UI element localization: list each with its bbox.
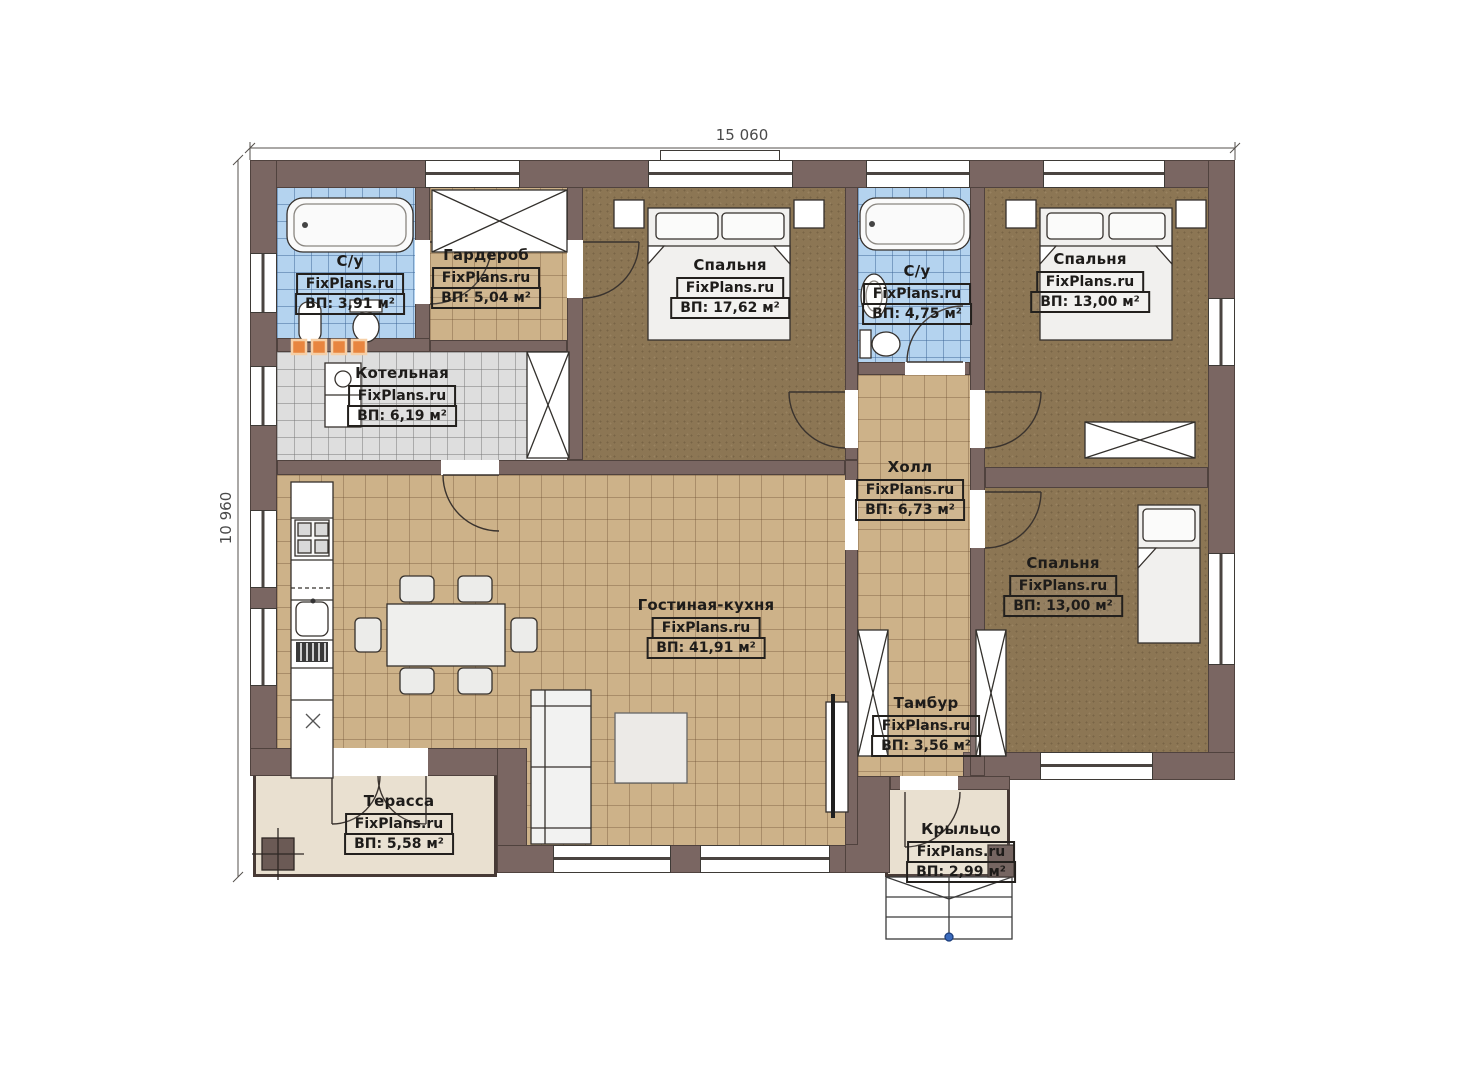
opening-hall-bedroom2 (970, 390, 985, 448)
room-name: Спальня (1026, 554, 1099, 572)
room-name: Холл (888, 458, 933, 476)
window-left-1 (250, 253, 277, 313)
watermark-badge: FixPlans.ru (296, 273, 404, 295)
room-area: ВП: 5,58 м² (344, 833, 454, 855)
watermark-badge: FixPlans.ru (348, 385, 456, 407)
entry-point-dot (945, 933, 953, 941)
opening-bedroom1 (567, 240, 583, 298)
room-name: Спальня (1053, 250, 1126, 268)
dimension-width: 15 060 (716, 126, 769, 144)
room-area: ВП: 4,75 м² (862, 303, 972, 325)
watermark-badge: FixPlans.ru (907, 841, 1015, 863)
bedroom-1-floor (583, 187, 845, 460)
room-area: ВП: 13,00 м² (1030, 291, 1150, 313)
room-label-terrace: Терасса FixPlans.ru ВП: 5,58 м² (344, 792, 454, 855)
watermark-badge: FixPlans.ru (432, 267, 540, 289)
opening-boiler (441, 460, 499, 475)
room-label-bathroom-1: С/у FixPlans.ru ВП: 3,91 м² (295, 252, 405, 315)
window-left-2 (250, 366, 277, 426)
watermark-badge: FixPlans.ru (345, 813, 453, 835)
room-label-wardrobe: Гардероб FixPlans.ru ВП: 5,04 м² (431, 246, 541, 309)
opening-hall-bedroom1 (845, 390, 858, 448)
bedroom-3-floor (985, 488, 1208, 752)
opening-wardrobe (415, 240, 430, 304)
room-area: ВП: 3,56 м² (871, 735, 981, 757)
watermark-badge: FixPlans.ru (856, 479, 964, 501)
partition-wardrobe-bedroom1 (567, 187, 583, 460)
window-bottom-1 (553, 845, 671, 873)
opening-entry-door (900, 776, 958, 790)
room-name: С/у (904, 262, 931, 280)
watermark-badge: FixPlans.ru (1036, 271, 1144, 293)
window-right-1 (1208, 298, 1235, 366)
dimension-height: 10 960 (217, 492, 235, 545)
wall-right (1208, 160, 1235, 780)
room-name: Гардероб (443, 246, 529, 264)
watermark-badge: FixPlans.ru (863, 283, 971, 305)
window-left-3 (250, 510, 277, 588)
wall-step (497, 748, 527, 848)
room-area: ВП: 13,00 м² (1003, 595, 1123, 617)
partition-bedroom2-bedroom3 (985, 467, 1208, 488)
room-area: ВП: 41,91 м² (646, 637, 766, 659)
room-area: ВП: 2,99 м² (906, 861, 1016, 883)
window-top-1 (425, 160, 520, 188)
room-name: Крыльцо (921, 820, 1001, 838)
window-top-3 (866, 160, 970, 188)
room-area: ВП: 3,91 м² (295, 293, 405, 315)
porch-steps (886, 877, 1012, 941)
room-name: С/у (337, 252, 364, 270)
room-area: ВП: 6,73 м² (855, 499, 965, 521)
window-left-4 (250, 608, 277, 686)
window-bottom-3 (1040, 752, 1153, 780)
room-label-bedroom-3: Спальня FixPlans.ru ВП: 13,00 м² (1003, 554, 1123, 617)
opening-hall-bedroom3 (970, 490, 985, 548)
opening-bath2 (905, 362, 965, 375)
window-top-2 (648, 160, 793, 188)
room-name: Тамбур (894, 694, 959, 712)
bedroom-2-floor (985, 187, 1208, 467)
partition-bath1-boiler (277, 338, 430, 352)
watermark-badge: FixPlans.ru (676, 277, 784, 299)
window-bottom-2 (700, 845, 830, 873)
room-area: ВП: 5,04 м² (431, 287, 541, 309)
partition-toprow-living (277, 460, 845, 475)
floor-plan: 15 060 10 960 С/у FixPlans.ru ВП: 3,91 м… (0, 0, 1473, 1080)
room-name: Котельная (355, 364, 449, 382)
room-label-boiler: Котельная FixPlans.ru ВП: 6,19 м² (347, 364, 457, 427)
opening-terrace-doors (330, 748, 428, 776)
watermark-badge: FixPlans.ru (652, 617, 760, 639)
room-label-porch: Крыльцо FixPlans.ru ВП: 2,99 м² (906, 820, 1016, 883)
room-name: Гостиная-кухня (638, 596, 775, 614)
room-area: ВП: 6,19 м² (347, 405, 457, 427)
room-area: ВП: 17,62 м² (670, 297, 790, 319)
watermark-badge: FixPlans.ru (1009, 575, 1117, 597)
room-label-bedroom-1: Спальня FixPlans.ru ВП: 17,62 м² (670, 256, 790, 319)
partition-hall-bedrooms (970, 187, 985, 776)
room-label-living-kitchen: Гостиная-кухня FixPlans.ru ВП: 41,91 м² (638, 596, 775, 659)
window-top-4 (1043, 160, 1165, 188)
room-name: Терасса (364, 792, 435, 810)
room-label-hall: Холл FixPlans.ru ВП: 6,73 м² (855, 458, 965, 521)
room-label-bathroom-2: С/у FixPlans.ru ВП: 4,75 м² (862, 262, 972, 325)
window-right-2 (1208, 553, 1235, 665)
partition-wardrobe-boiler (430, 340, 567, 352)
room-label-tambur: Тамбур FixPlans.ru ВП: 3,56 м² (871, 694, 981, 757)
room-name: Спальня (693, 256, 766, 274)
watermark-badge: FixPlans.ru (872, 715, 980, 737)
room-label-bedroom-2: Спальня FixPlans.ru ВП: 13,00 м² (1030, 250, 1150, 313)
